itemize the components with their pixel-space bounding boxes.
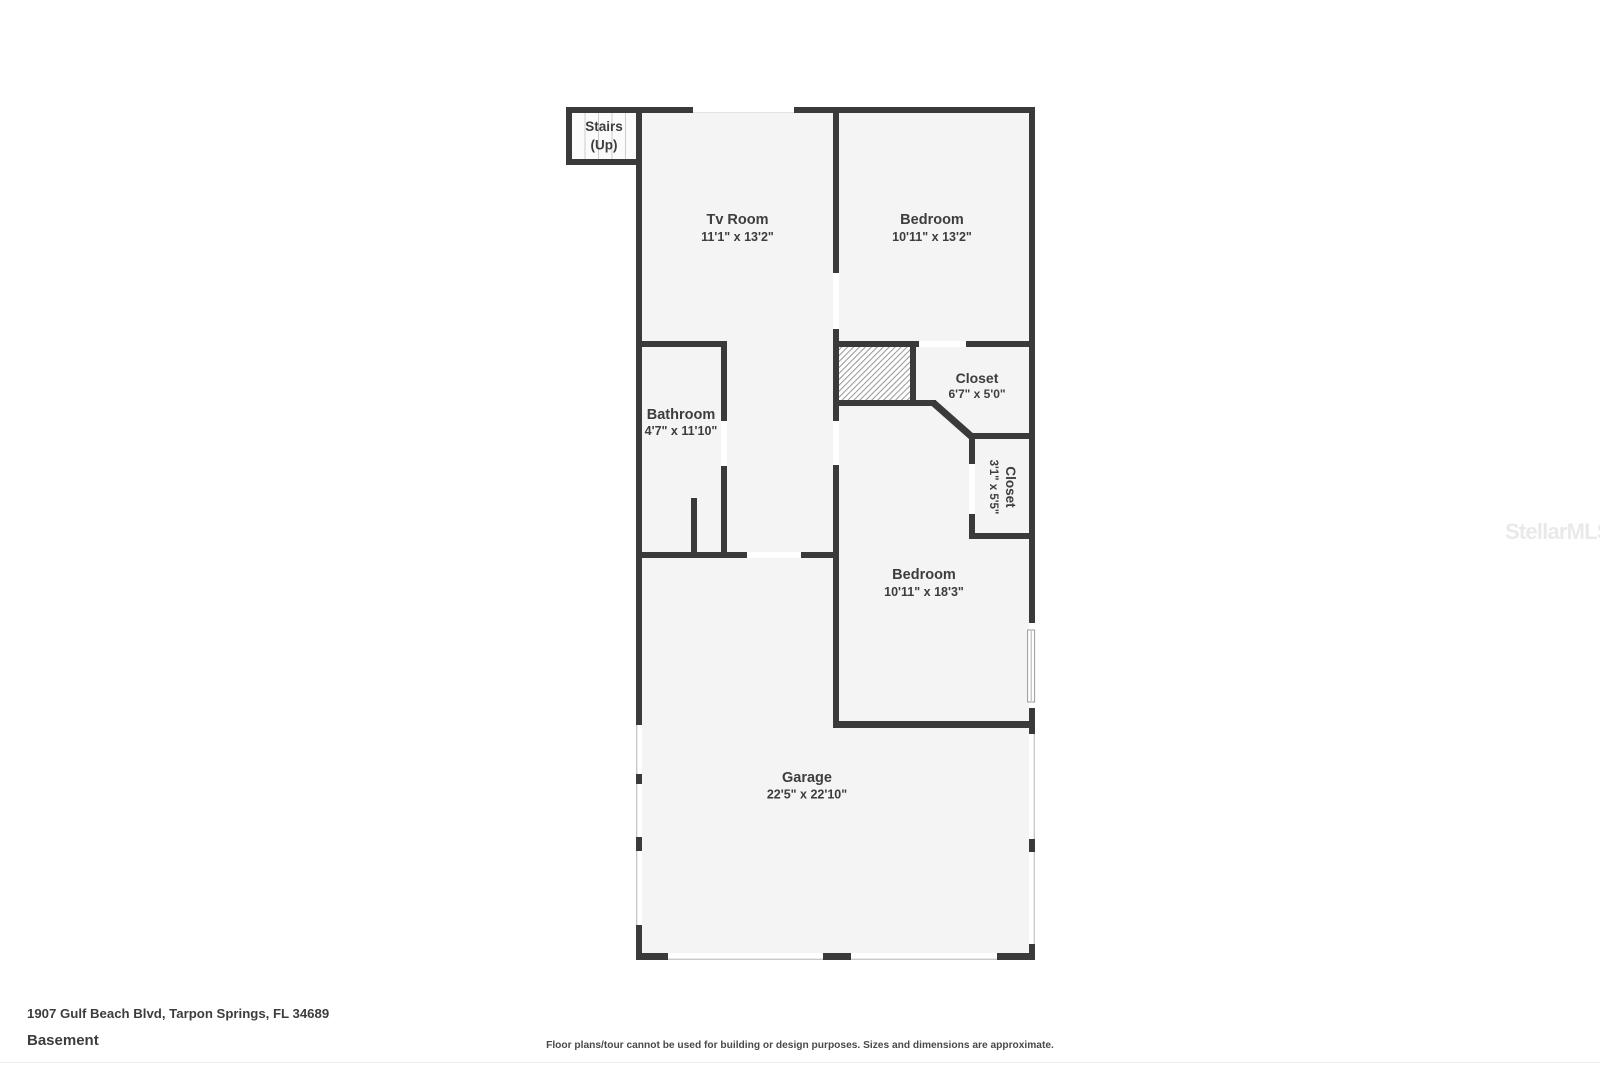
svg-text:Basement: Basement (27, 1032, 99, 1049)
svg-text:4'7" x 11'10": 4'7" x 11'10" (645, 424, 718, 438)
svg-text:Bedroom: Bedroom (892, 567, 956, 583)
svg-text:3'1" x 5'5": 3'1" x 5'5" (987, 460, 999, 515)
svg-text:1907 Gulf Beach Blvd, Tarpon S: 1907 Gulf Beach Blvd, Tarpon Springs, FL… (27, 1006, 329, 1021)
svg-text:11'1" x 13'2": 11'1" x 13'2" (701, 230, 774, 244)
svg-text:Bedroom: Bedroom (900, 212, 964, 228)
svg-text:Closet: Closet (956, 370, 999, 386)
svg-text:10'11" x 18'3": 10'11" x 18'3" (884, 585, 964, 599)
svg-text:Closet: Closet (1003, 466, 1018, 508)
svg-text:Stairs: Stairs (585, 119, 623, 134)
svg-text:10'11" x 13'2": 10'11" x 13'2" (892, 230, 972, 244)
svg-text:(Up): (Up) (591, 138, 618, 153)
svg-text:6'7" x 5'0": 6'7" x 5'0" (948, 387, 1005, 401)
svg-text:Garage: Garage (782, 770, 832, 786)
svg-text:Floor plans/tour cannot be use: Floor plans/tour cannot be used for buil… (546, 1040, 1054, 1051)
svg-text:Tv Room: Tv Room (706, 212, 768, 228)
svg-text:22'5" x 22'10": 22'5" x 22'10" (767, 788, 847, 802)
svg-text:StellarMLS: StellarMLS (1505, 519, 1600, 544)
svg-text:Bathroom: Bathroom (647, 407, 715, 423)
